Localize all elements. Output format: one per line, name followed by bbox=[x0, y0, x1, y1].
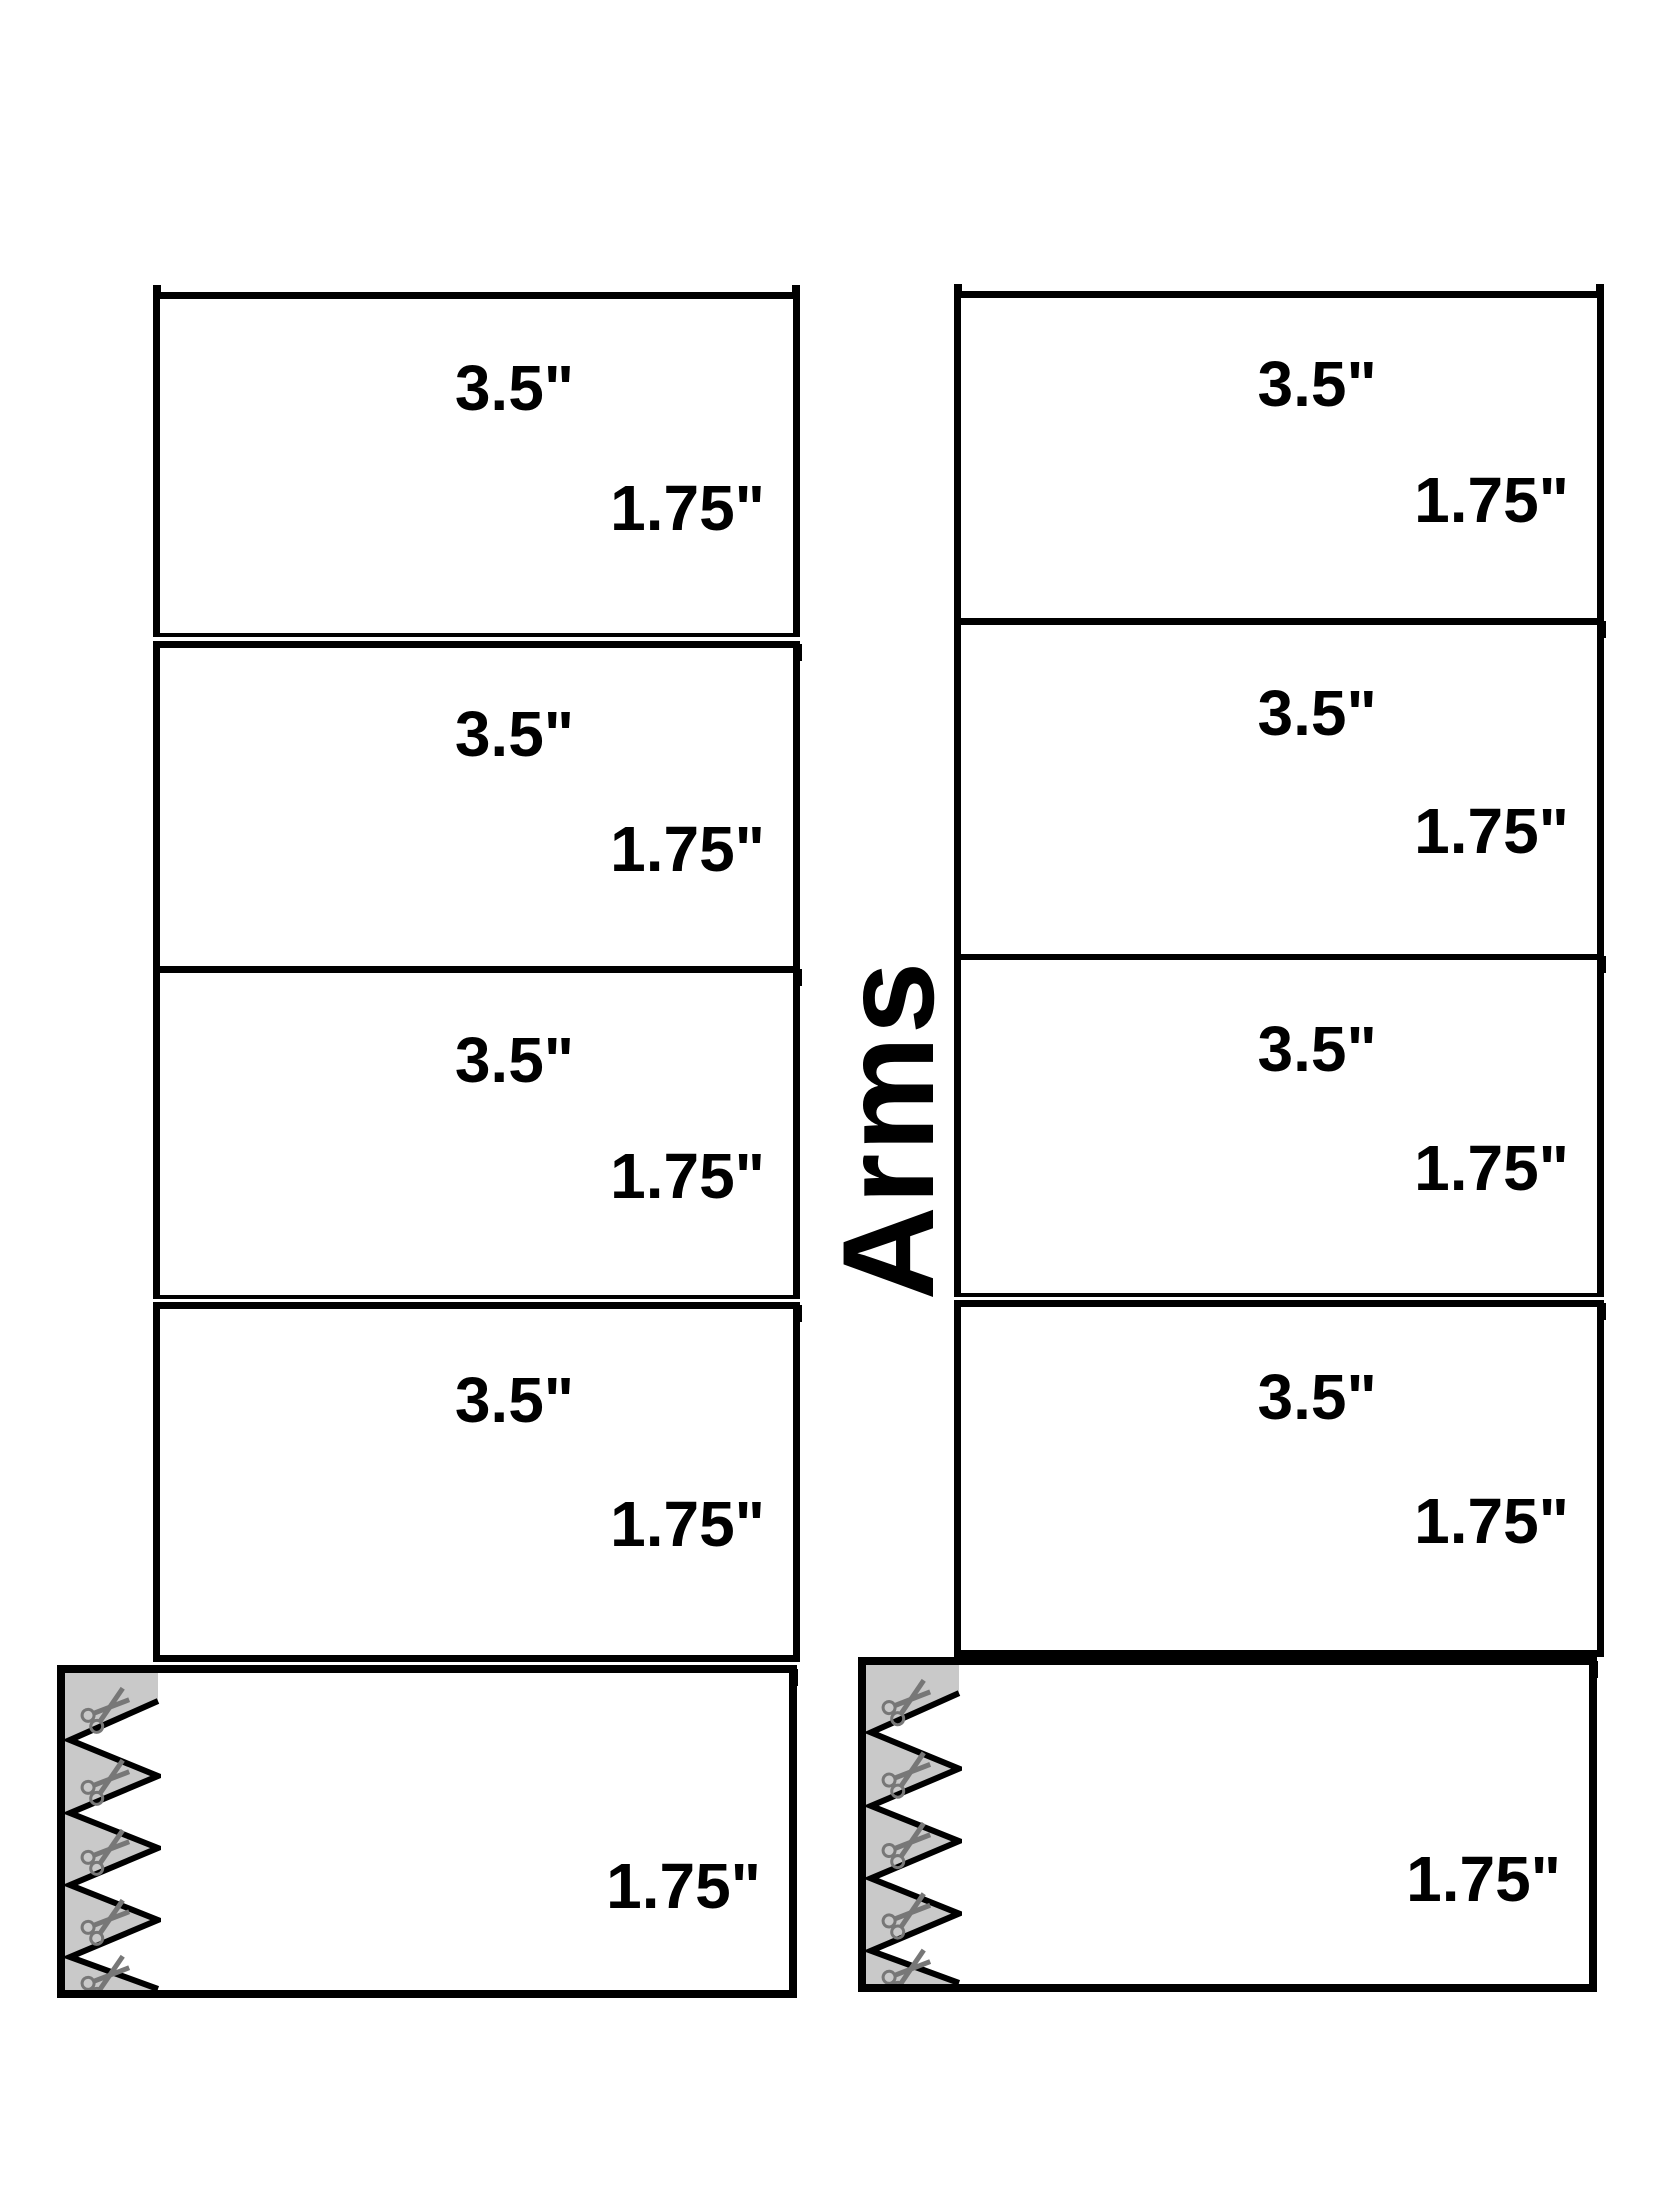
border-tick bbox=[1599, 956, 1606, 973]
arm-piece-left-5: 1.75" bbox=[57, 1665, 797, 1998]
arm-piece-left-1: 3.5" 1.75" bbox=[153, 292, 800, 637]
width-measurement: 3.5" bbox=[455, 1368, 574, 1432]
border-tick bbox=[795, 969, 802, 986]
pattern-sheet: 3.5" 1.75" 3.5" 1.75" 3.5" 1.75" 3.5" 1.… bbox=[0, 0, 1653, 2200]
arm-piece-right-3: 3.5" 1.75" bbox=[954, 954, 1604, 1297]
border-tick bbox=[1599, 1303, 1606, 1320]
width-measurement: 3.5" bbox=[1258, 1017, 1377, 1081]
arm-piece-right-4: 3.5" 1.75" bbox=[954, 1300, 1604, 1657]
height-measurement: 1.75" bbox=[1406, 1847, 1561, 1911]
border-tick bbox=[1591, 1661, 1598, 1678]
border-tick bbox=[792, 285, 800, 299]
arm-piece-right-1: 3.5" 1.75" bbox=[954, 291, 1604, 625]
border-tick bbox=[1599, 621, 1606, 638]
border-tick bbox=[954, 284, 962, 298]
border-tick bbox=[795, 1305, 802, 1322]
arm-piece-right-5: 1.75" bbox=[858, 1657, 1597, 1992]
cut-here-strip bbox=[65, 1673, 161, 1990]
width-measurement: 3.5" bbox=[455, 356, 574, 420]
border-tick bbox=[1596, 284, 1604, 298]
width-measurement: 3.5" bbox=[1258, 352, 1377, 416]
width-measurement: 3.5" bbox=[455, 1028, 574, 1092]
arm-piece-left-3: 3.5" 1.75" bbox=[153, 966, 800, 1299]
height-measurement: 1.75" bbox=[1414, 1489, 1569, 1553]
border-tick bbox=[153, 285, 161, 299]
height-measurement: 1.75" bbox=[1414, 468, 1569, 532]
height-measurement: 1.75" bbox=[610, 1492, 765, 1556]
height-measurement: 1.75" bbox=[610, 1144, 765, 1208]
border-tick bbox=[791, 1669, 798, 1686]
width-measurement: 3.5" bbox=[455, 702, 574, 766]
arm-piece-left-4: 3.5" 1.75" bbox=[153, 1302, 800, 1662]
height-measurement: 1.75" bbox=[606, 1854, 761, 1918]
height-measurement: 1.75" bbox=[1414, 1136, 1569, 1200]
height-measurement: 1.75" bbox=[610, 476, 765, 540]
section-title: Arms bbox=[823, 960, 953, 1300]
cut-here-strip bbox=[866, 1665, 962, 1984]
arm-piece-left-2: 3.5" 1.75" bbox=[153, 641, 800, 973]
height-measurement: 1.75" bbox=[1414, 799, 1569, 863]
arm-piece-right-2: 3.5" 1.75" bbox=[954, 618, 1604, 960]
width-measurement: 3.5" bbox=[1258, 1365, 1377, 1429]
border-tick bbox=[795, 644, 802, 661]
height-measurement: 1.75" bbox=[610, 817, 765, 881]
width-measurement: 3.5" bbox=[1258, 681, 1377, 745]
